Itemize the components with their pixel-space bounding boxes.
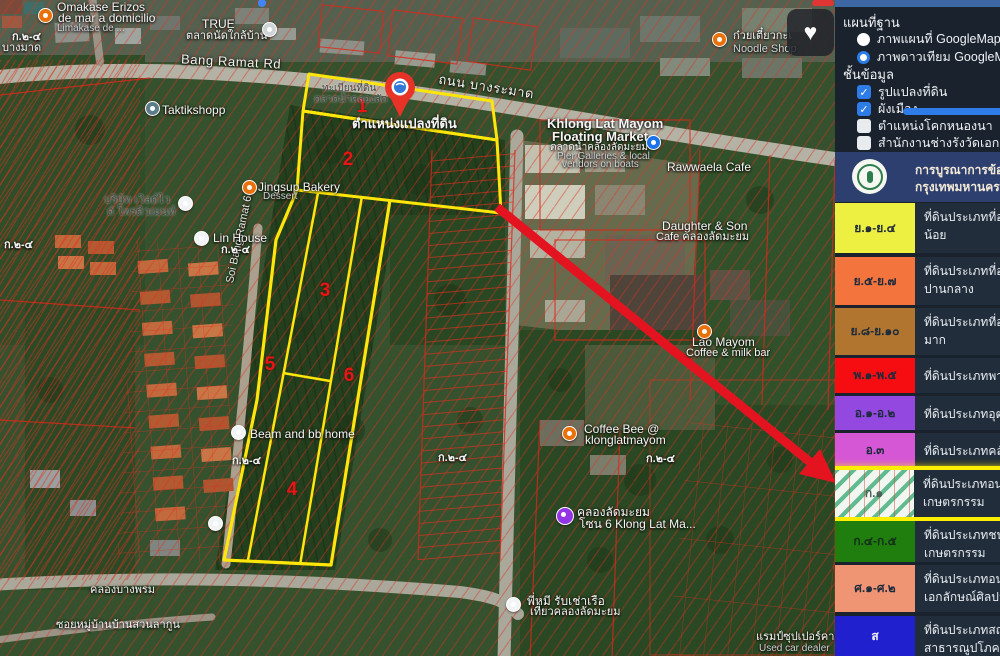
legend-desc: สาธารณูปโภคและสาธารณูปการ (924, 639, 1000, 656)
panel-top-bar (835, 0, 1000, 7)
legend-desc: เกษตรกรรม (924, 544, 1000, 562)
layer-label: สำนักงานช่างรังวัดเอกชน (878, 133, 1000, 153)
legend-row[interactable]: ศ.๑-ศ.๒ ที่ดินประเภทอนุรักษ์เพื่อส่งเสริ… (835, 565, 1000, 612)
zone-label: ก.๒-๔ (221, 245, 250, 257)
parcel-number: 5 (265, 355, 276, 375)
radio-icon[interactable] (857, 33, 870, 46)
poi-label: ตลาดนัดใกล้บ้าน (186, 31, 267, 43)
poi-label: vendors on boats (562, 160, 639, 171)
legend-desc: เอกลักษณ์ศิลปวัฒนธรรมไทย (924, 588, 1000, 606)
legend-row[interactable]: ย.๘-ย.๑๐ ที่ดินประเภทที่อยู่อาศัยหนาแน่น… (835, 308, 1000, 355)
poi-label[interactable]: ก๋วยเตี๋ยวกะเ (733, 31, 792, 43)
legend-desc: น้อย (924, 226, 1000, 244)
place-label: บางมาด (2, 43, 41, 55)
canal-label: คลองบางพรม (90, 585, 155, 597)
legend-desc: ที่ดินประเภทอนุรักษ์เพื่อส่งเสริม (924, 570, 1000, 588)
legend-desc: มาก (924, 331, 1000, 349)
checkbox-checked-icon[interactable]: ✓ (857, 85, 871, 99)
legend-desc: ที่ดินประเภทสถาบันราชการ การ (924, 621, 1000, 639)
legend-swatch: ย.๑-ย.๔ (835, 203, 915, 253)
lodging-poi-icon[interactable] (231, 425, 246, 440)
legend-row[interactable]: ก.๔-ก.๕ ที่ดินประเภทชนบทและเกษตรกรรม (835, 521, 1000, 562)
legend-desc: ที่ดินประเภทคลังสินค้า (924, 442, 1000, 460)
legend-desc: เกษตรกรรม (923, 493, 1000, 511)
layers-legend-panel: แผนที่ฐาน ภาพแผนที่ GoogleMap ภาพดาวเทีย… (835, 0, 1000, 656)
company-poi-icon[interactable] (178, 196, 193, 211)
zone-label: ก.๒-๔ (232, 456, 261, 468)
legend-row-highlighted[interactable]: ก.๑ ที่ดินประเภทอนุรักษ์ชนบทและเกษตรกรรม (835, 466, 1000, 521)
legend-swatch: ย.๕-ย.๗ (835, 257, 915, 305)
opacity-slider[interactable] (903, 108, 1000, 115)
poi-label: เที่ยวคลองลัดมะยม (530, 607, 620, 619)
parcel-number: 4 (287, 480, 298, 500)
save-favorite-button[interactable]: ♥ (787, 9, 834, 56)
legend-desc: ที่ดินประเภทอนุรักษ์ชนบทและ (923, 475, 1000, 493)
poi-label[interactable]: TRUE (202, 18, 235, 31)
checkbox-checked-icon[interactable]: ✓ (857, 102, 871, 116)
zone-label: ก.๒-๔ (12, 32, 41, 44)
legend-swatch: ส (835, 616, 915, 656)
basemap-option-label: ภาพแผนที่ GoogleMap (877, 29, 1000, 49)
parcel-number: 6 (344, 366, 355, 386)
checkbox-unchecked-icon[interactable] (857, 119, 871, 133)
poi-label: Used car dealer (759, 644, 830, 655)
poi-label[interactable]: Rawwaela Cafe (667, 161, 751, 174)
poi-label: ทะเบียนที่ดิน (322, 84, 376, 95)
poi-label[interactable]: Beam and bb home (250, 428, 355, 441)
cafe-poi-icon[interactable] (697, 324, 712, 339)
poi-label[interactable]: แรมป์ซุปเปอร์คาร์ (756, 632, 840, 644)
lodging-poi-icon[interactable] (194, 231, 209, 246)
poi-label: โซน 6 Klong Lat Ma... (579, 518, 696, 531)
banner-line1: การบูรณาการข้อมูล (915, 162, 1000, 179)
basemap-option-roadmap[interactable]: ภาพแผนที่ GoogleMap (857, 29, 1000, 49)
legend-swatch-striped: ก.๑ (835, 470, 914, 517)
zone-label: ก.๒-๔ (4, 240, 33, 252)
legend-swatch: พ.๑-พ.๕ (835, 358, 915, 393)
boat-rental-poi-icon[interactable] (506, 597, 521, 612)
legend-desc: ที่ดินประเภทพาณิชยกรรม (924, 367, 1000, 385)
legend-swatch: อ.๑-อ.๒ (835, 396, 915, 430)
cafe-poi-icon[interactable] (562, 426, 577, 441)
legend-row[interactable]: ย.๕-ย.๗ ที่ดินประเภทที่อยู่อาศัยหนาแน่นป… (835, 257, 1000, 305)
zone-label: ก.๒-๔ (646, 454, 675, 466)
poi-label: Coffee & milk bar (686, 348, 770, 360)
radio-selected-icon[interactable] (857, 51, 870, 64)
legend-row[interactable]: อ.๓ ที่ดินประเภทคลังสินค้า (835, 433, 1000, 467)
poi-label[interactable]: Taktikshopp (162, 104, 225, 117)
legend-row[interactable]: ย.๑-ย.๔ ที่ดินประเภทที่อยู่อาศัยหนาแน่นน… (835, 203, 1000, 253)
cut-marker (812, 0, 834, 6)
agency-banner: การบูรณาการข้อมูล กรุงเทพมหานคร (835, 152, 1000, 202)
zone-label: ก.๒-๔ (438, 453, 467, 465)
poi-label: ตลาดน้ำคลองลัด (314, 95, 388, 106)
restaurant-poi-icon[interactable] (38, 8, 53, 23)
parcel-number: 2 (343, 150, 354, 170)
legend-desc: ที่ดินประเภทอุตสาหกรรม (924, 405, 1000, 423)
ferry-poi-icon[interactable] (646, 135, 661, 150)
parcel-number: 3 (320, 281, 331, 301)
poi-label: บริษัท เวิลด์ไว (104, 195, 170, 207)
agency-logo (852, 159, 887, 194)
road-label: ซอยหมู่บ้านบ้านสวนลากูน (56, 620, 180, 632)
poi-label: klonglatmayom (585, 434, 666, 447)
layer-private-survey[interactable]: สำนักงานช่างรังวัดเอกชน (857, 133, 1000, 153)
legend-desc: ที่ดินประเภทที่อยู่อาศัยหนาแน่น (924, 313, 1000, 331)
legend-desc: ที่ดินประเภทที่อยู่อาศัยหนาแน่น (924, 208, 1000, 226)
store-poi-icon[interactable] (208, 516, 223, 531)
bakery-poi-icon[interactable] (242, 180, 257, 195)
legend-swatch: ย.๘-ย.๑๐ (835, 308, 915, 355)
basemap-option-label: ภาพดาวเทียม GoogleMap (877, 47, 1000, 67)
legend-swatch: ก.๔-ก.๕ (835, 521, 915, 562)
poi-label: Dessert (263, 192, 297, 203)
poi-label: Limakase de ... (57, 24, 125, 35)
restaurant-poi-icon[interactable] (712, 32, 727, 47)
poi-label: Cafe คลองลัดมะยม (656, 232, 749, 244)
banner-line2: กรุงเทพมหานคร (915, 179, 1000, 196)
legend-desc: ที่ดินประเภทที่อยู่อาศัยหนาแน่น (924, 262, 1000, 280)
legend-row[interactable]: พ.๑-พ.๕ ที่ดินประเภทพาณิชยกรรม (835, 358, 1000, 393)
legend-swatch: ศ.๑-ศ.๒ (835, 565, 915, 612)
pin-label: ตำแหน่งแปลงที่ดิน (352, 117, 457, 131)
store-poi-icon[interactable] (262, 22, 277, 37)
map-viewer: Bang Ramat Rd ถนน บางระมาด Soi Bang Rama… (0, 0, 1000, 656)
legend-swatch: อ.๓ (835, 433, 915, 467)
checkbox-unchecked-icon[interactable] (857, 136, 871, 150)
attraction-poi-icon[interactable] (556, 507, 574, 525)
poi-label[interactable]: Lin House (213, 232, 267, 245)
legend-desc: ปานกลาง (924, 280, 1000, 298)
legend-row[interactable]: อ.๑-อ.๒ ที่ดินประเภทอุตสาหกรรม (835, 396, 1000, 430)
legend-row[interactable]: ส ที่ดินประเภทสถาบันราชการ การสาธารณูปโภ… (835, 616, 1000, 656)
poi-label: ด์ โพรดิวเมนท์ (107, 207, 175, 219)
legend-desc: ที่ดินประเภทชนบทและ (924, 526, 1000, 544)
heart-icon: ♥ (804, 19, 818, 46)
store-poi-icon[interactable] (145, 101, 160, 116)
